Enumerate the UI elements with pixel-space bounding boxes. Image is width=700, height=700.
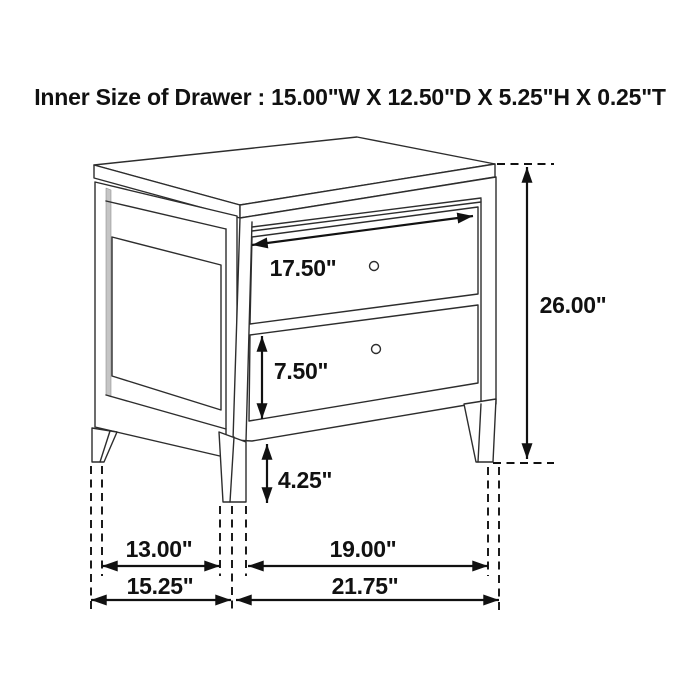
- side-panel-shadow-strip: [106, 188, 111, 397]
- nightstand-diagram: 17.50" 7.50" 4.25" 26.00" 13.00": [0, 0, 700, 700]
- dim-label-overall-height: 26.00": [540, 292, 607, 318]
- drawer-knob-top: [370, 262, 379, 271]
- dim-leg-height: 4.25": [267, 444, 332, 503]
- dim-label-bottom-drawer-height: 7.50": [274, 358, 328, 384]
- dim-overall-width: 21.75": [236, 573, 499, 600]
- dim-label-overall-width: 21.75": [332, 573, 399, 599]
- dim-label-depth-between-legs: 13.00": [126, 536, 193, 562]
- dim-label-leg-height: 4.25": [278, 467, 332, 493]
- dim-overall-depth: 15.25": [91, 573, 231, 600]
- dim-label-overall-depth: 15.25": [127, 573, 194, 599]
- dim-depth-between-legs: 13.00": [102, 536, 220, 566]
- dim-overall-height: 26.00": [527, 167, 606, 459]
- product-dimension-diagram: Inner Size of Drawer : 15.00"W X 12.50"D…: [0, 0, 700, 700]
- leg-back-left: [92, 428, 117, 462]
- dim-label-width-between-legs: 19.00": [330, 536, 397, 562]
- nightstand-drawing: [92, 137, 496, 502]
- dim-label-top-drawer-width: 17.50": [270, 255, 337, 281]
- dim-width-between-legs: 19.00": [248, 536, 488, 566]
- drawer-knob-bottom: [372, 345, 381, 354]
